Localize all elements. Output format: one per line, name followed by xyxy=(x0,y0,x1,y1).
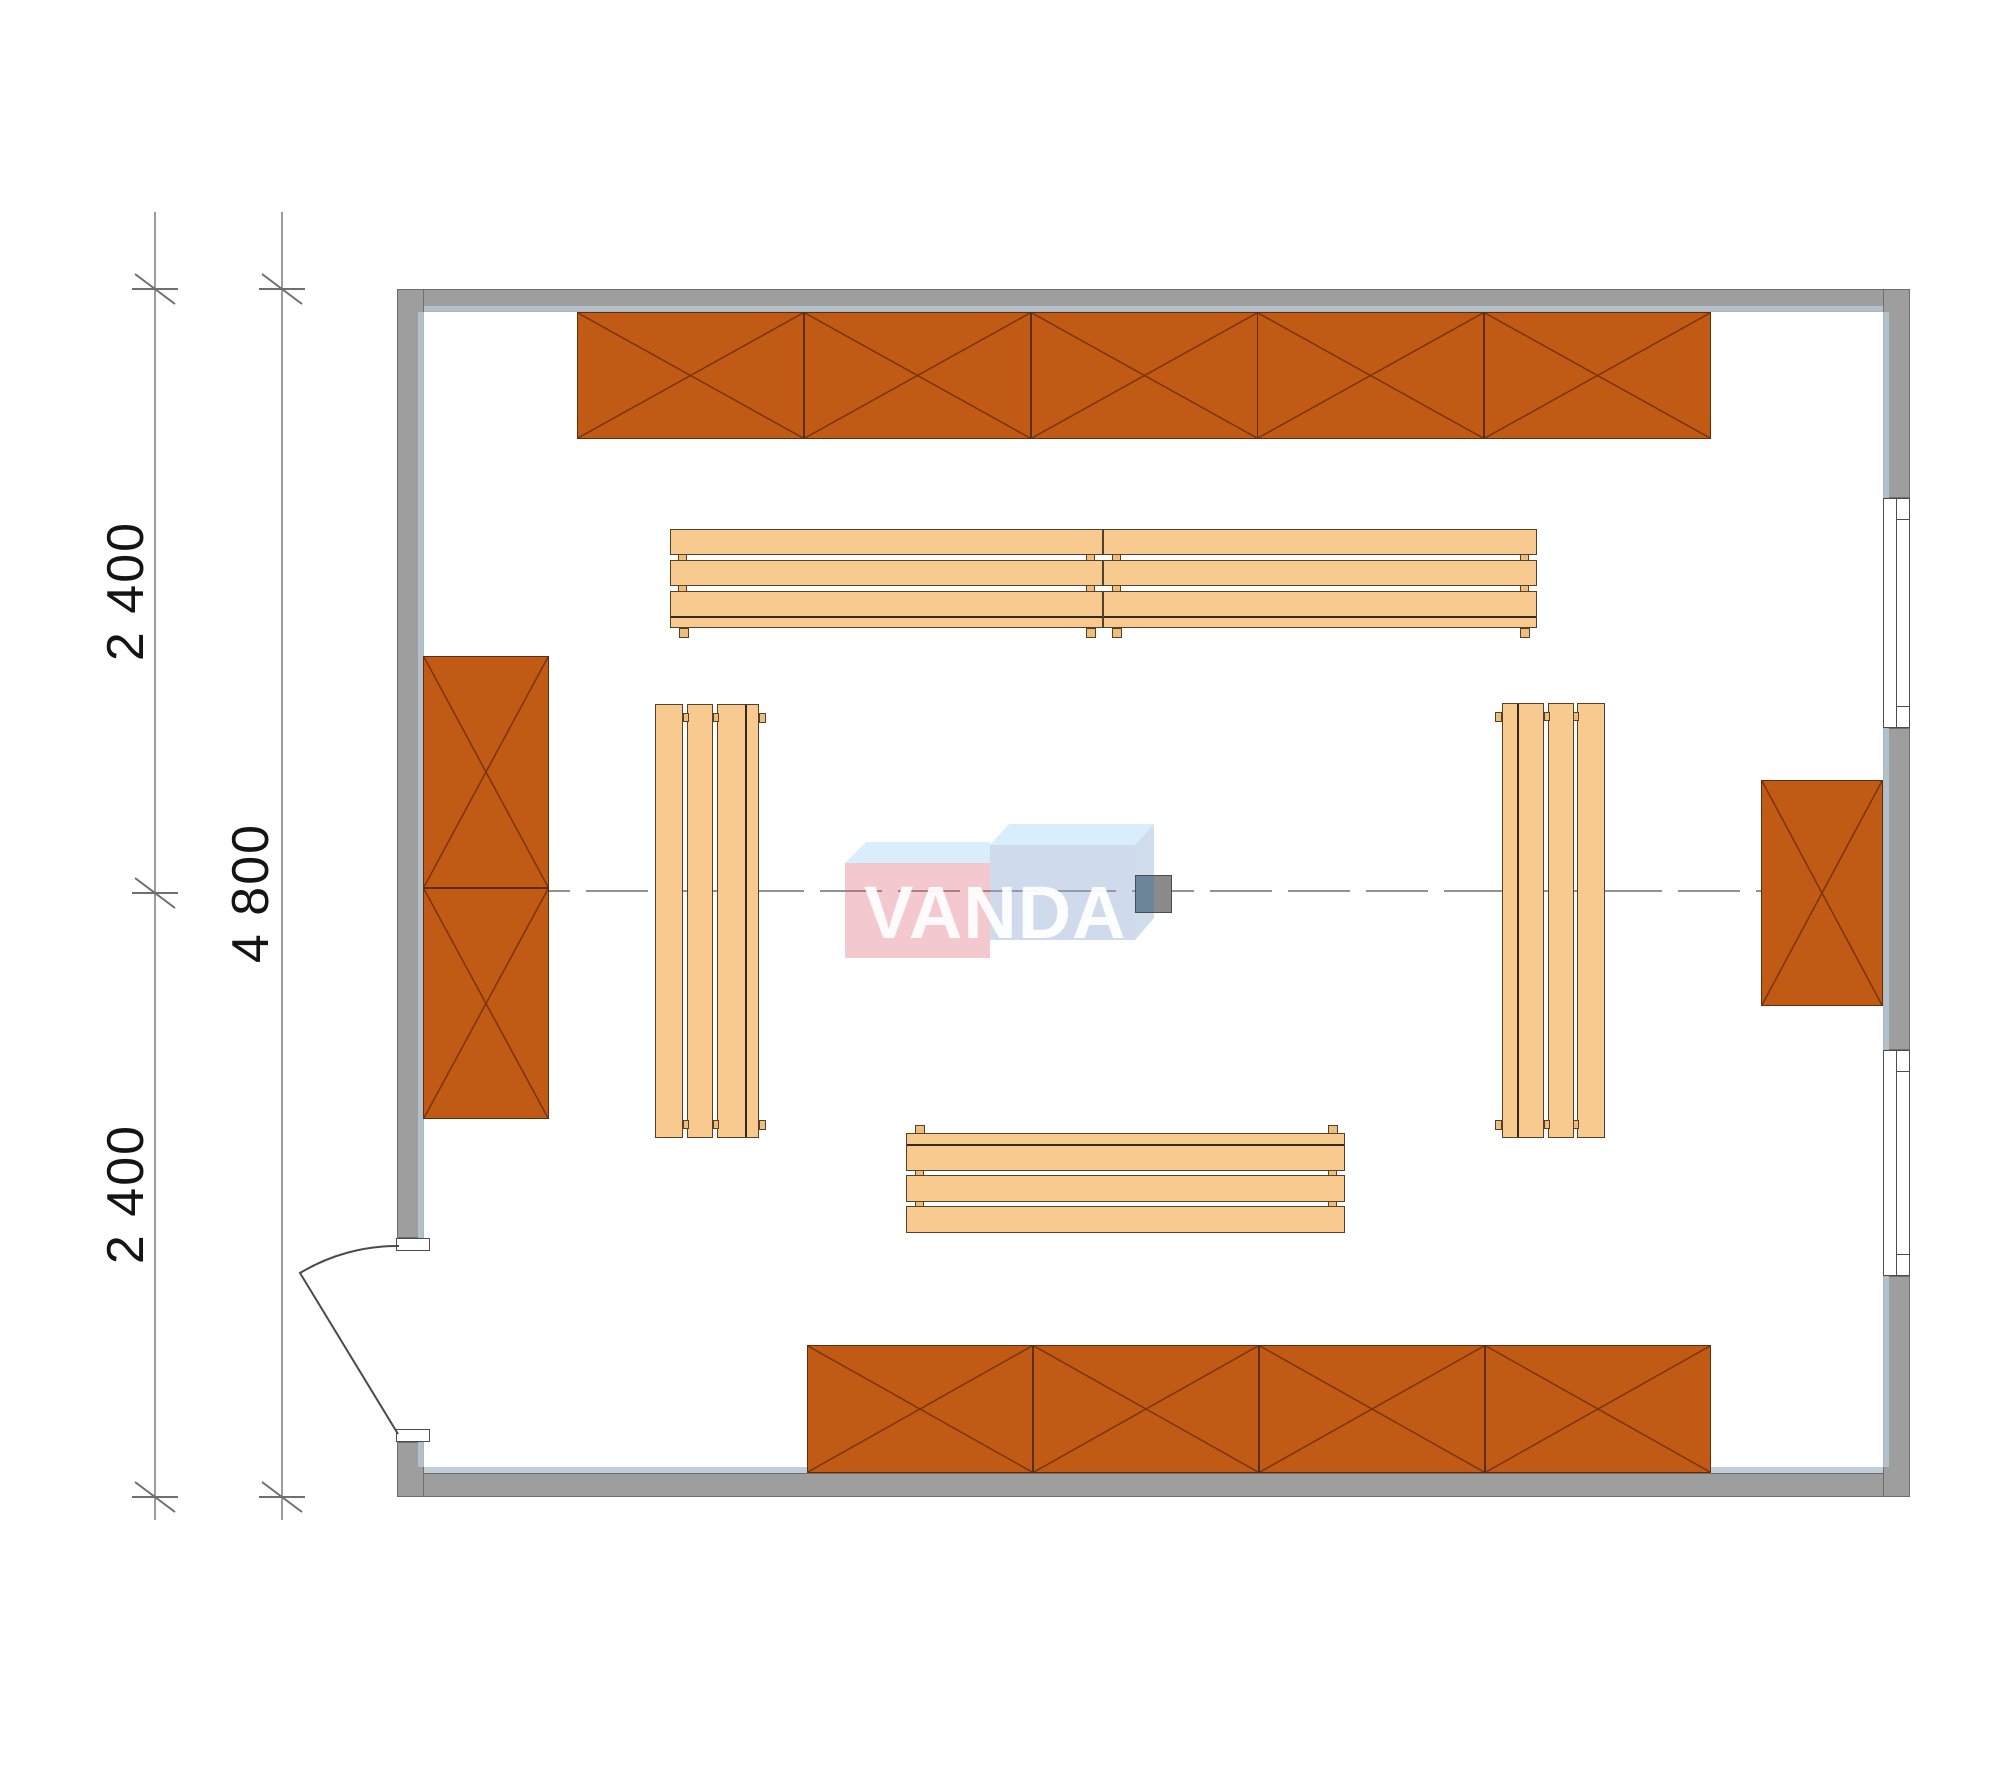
bench-foot xyxy=(1086,554,1095,561)
bench-slat xyxy=(906,1206,1345,1233)
bench-bottom xyxy=(906,1125,1345,1233)
x-brace-icon xyxy=(578,313,803,438)
bench-slat xyxy=(670,560,1103,586)
shelving-unit-left-1 xyxy=(423,656,549,888)
shelving-unit-bottom-3 xyxy=(1259,1345,1485,1473)
bottom-wall xyxy=(397,1473,1910,1497)
right-wall-liner-lower xyxy=(1883,1276,1889,1467)
bench-seat xyxy=(1502,703,1544,1138)
bench-seat-edge xyxy=(1104,616,1536,618)
dimension-label-total: 4 800 xyxy=(221,823,281,963)
bench-foot xyxy=(1544,712,1550,721)
x-brace-icon xyxy=(1762,781,1882,1005)
bench-foot xyxy=(1495,712,1502,722)
shelving-unit-bottom-2 xyxy=(1033,1345,1259,1473)
x-brace-icon xyxy=(1258,313,1483,438)
bench-seat xyxy=(717,704,759,1138)
bench-slat xyxy=(1103,560,1537,586)
bench-foot xyxy=(713,1120,719,1129)
bench-seat xyxy=(670,591,1103,628)
shelving-unit-right-1 xyxy=(1761,780,1883,1006)
door-jamb-top xyxy=(396,1238,430,1251)
door-jamb-bottom xyxy=(396,1429,430,1442)
bench-foot xyxy=(1112,554,1121,561)
bench-foot xyxy=(679,628,689,638)
bench-seat-edge xyxy=(745,705,747,1137)
x-brace-icon xyxy=(808,1346,1032,1472)
bench-top xyxy=(670,529,1537,638)
bench-left-vertical xyxy=(655,704,766,1138)
bench-foot xyxy=(1520,628,1530,638)
bench-foot xyxy=(1573,712,1579,721)
shelving-unit-bottom-1 xyxy=(807,1345,1033,1473)
dimension-label-bottom-segment: 2 400 xyxy=(96,1124,156,1264)
shelving-unit-top-1 xyxy=(577,312,804,439)
bench-foot xyxy=(1544,1120,1550,1129)
x-brace-icon xyxy=(1034,1346,1258,1472)
x-brace-icon xyxy=(1032,313,1257,438)
bench-foot xyxy=(683,713,689,722)
bench-seat-edge xyxy=(1517,704,1519,1137)
left-wall-liner-lower xyxy=(418,1442,424,1467)
bench-foot xyxy=(1573,1120,1579,1129)
center-column xyxy=(1135,875,1172,913)
watermark-blue-block-top-face xyxy=(990,824,1154,845)
window-lower xyxy=(1883,1050,1910,1276)
watermark-pink-block-top-face xyxy=(845,842,990,863)
window-lower-glass-line xyxy=(1896,1051,1897,1275)
door-swing-arc xyxy=(300,1246,399,1434)
right-wall-liner-upper xyxy=(1883,312,1889,498)
bench-foot xyxy=(759,1120,766,1130)
x-brace-icon xyxy=(1486,1346,1710,1472)
bench-foot xyxy=(678,585,687,592)
vanda-watermark-text: VANDA xyxy=(864,870,1127,955)
bench-foot xyxy=(1520,554,1529,561)
shelving-unit-top-4 xyxy=(1257,312,1484,439)
bench-foot xyxy=(1112,628,1122,638)
center-column-shaded-half xyxy=(1136,876,1154,912)
window-lower-frame-bottom xyxy=(1896,1254,1909,1255)
bench-slat xyxy=(1548,703,1574,1138)
window-upper-glass-line xyxy=(1896,499,1897,727)
window-upper xyxy=(1883,498,1910,728)
bench-foot xyxy=(1086,585,1095,592)
bench-slat xyxy=(1103,529,1537,555)
x-brace-icon xyxy=(1485,313,1710,438)
bench-slat xyxy=(906,1175,1345,1202)
shelving-unit-top-5 xyxy=(1484,312,1711,439)
x-brace-icon xyxy=(424,889,548,1118)
bench-seat xyxy=(1103,591,1537,628)
bench-foot xyxy=(759,713,766,723)
shelving-unit-left-2 xyxy=(423,888,549,1119)
x-brace-icon xyxy=(1260,1346,1484,1472)
bench-foot xyxy=(1520,585,1529,592)
bench-foot xyxy=(1112,585,1121,592)
dimension-label-top-segment: 2 400 xyxy=(96,521,156,661)
bench-foot xyxy=(1495,1120,1502,1130)
bench-seat-edge xyxy=(671,616,1102,618)
bench-right-vertical xyxy=(1495,703,1606,1138)
shelving-unit-top-2 xyxy=(804,312,1031,439)
bench-foot xyxy=(678,554,687,561)
bench-slat xyxy=(655,704,683,1138)
x-brace-icon xyxy=(805,313,1030,438)
bench-foot xyxy=(713,713,719,722)
window-upper-frame-bottom xyxy=(1896,706,1909,707)
x-brace-icon xyxy=(424,657,548,887)
bench-slat xyxy=(687,704,713,1138)
bench-slat xyxy=(1577,703,1605,1138)
shelving-unit-bottom-4 xyxy=(1485,1345,1711,1473)
window-upper-frame-top xyxy=(1896,519,1909,520)
shelving-unit-top-3 xyxy=(1031,312,1258,439)
floor-plan: VANDA 2 400 2 400 4 800 xyxy=(0,0,2000,1786)
bench-seat-edge xyxy=(907,1144,1344,1146)
bench-slat xyxy=(670,529,1103,555)
window-lower-frame-top xyxy=(1896,1071,1909,1072)
right-wall-liner-middle xyxy=(1883,728,1889,1050)
bench-seat xyxy=(906,1133,1345,1171)
bench-foot xyxy=(1086,628,1096,638)
bench-foot xyxy=(683,1120,689,1129)
